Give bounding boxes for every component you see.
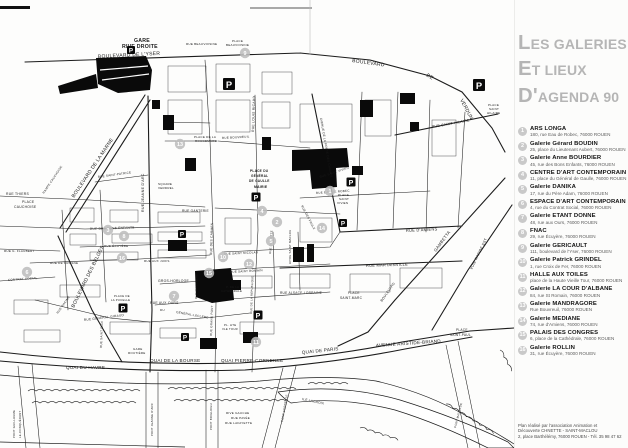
street-label: QUAI DE LA BOURSE <box>150 358 200 363</box>
legend-entry-text: Galerie LA COUR D'ALBANE84, rue St Romai… <box>530 286 612 297</box>
gallery-address: 48, rue aux Ours, 76000 ROUEN <box>530 220 597 225</box>
legend-entry-text: Galerie Patrick GRINDEL1, rue Croix de F… <box>530 257 602 268</box>
street-label: RUE MARTAINVILLE <box>366 262 408 268</box>
street-label: VOIE RAPIDE EST <box>469 237 488 270</box>
legend-entry: 14Galerie MEDIANE74, rue d'Amiens, 76000… <box>518 316 628 327</box>
legend-title: LES GALERIES ET LIEUX D'AGENDA 90 <box>518 30 626 109</box>
gallery-name: ESPACE D'ART CONTEMPORAIN <box>530 199 626 205</box>
street-label: PLACE <box>456 328 468 332</box>
street-label: RUE GRAND PONT <box>209 305 214 336</box>
gallery-name: PALAIS DES CONGRES <box>530 330 614 336</box>
street-label: RUE AUX OURS <box>150 301 179 305</box>
gallery-address: 31, rue Écuyère, 76000 ROUEN <box>530 351 596 356</box>
parking-icon-letter: P <box>256 313 261 320</box>
legend-number-badge: 11 <box>518 273 527 282</box>
gallery-address: 17, rue du Père Adam, 76000 ROUEN <box>530 191 608 196</box>
street-label: RUE SAINT NICOLAS <box>224 250 258 256</box>
street-label: RUE ÉCUYÈRE <box>104 243 128 248</box>
river-wave-line <box>28 389 140 391</box>
legend-entry: 3Galerie Anne BOURDIER45, rue des Bons E… <box>518 155 628 166</box>
legend-entry-text: Galerie Anne BOURDIER45, rue des Bons En… <box>530 155 615 166</box>
gallery-name: Galerie LA COUR D'ALBANE <box>530 286 612 292</box>
street-label: SAINT-PAUL <box>450 333 471 337</box>
street-label: VERDUN <box>458 98 474 121</box>
street-label: RUE DE LA RÉPUBLIQUE <box>248 275 254 314</box>
street-label: LE-CONQUÉRANT <box>17 410 22 438</box>
parking-icon-letter: P <box>349 180 354 187</box>
gallery-marker-number: 15 <box>206 271 212 277</box>
street-label: RUE SAINT ROMAIN <box>230 268 263 274</box>
legend-number-badge: 9 <box>518 244 527 253</box>
street-labels: GARERIVE DROITEBOULEVARD DE L'YSERBOULEV… <box>4 38 500 438</box>
street-label: CAUCHOISE <box>14 205 37 209</box>
legend-number-badge: 5 <box>518 185 527 194</box>
street-label: CONTRAT SOCIAL <box>8 276 38 282</box>
river-wave-line <box>32 401 136 403</box>
title-line-1: LES GALERIES <box>518 30 626 56</box>
legend-number-badge: 7 <box>518 214 527 223</box>
gallery-marker-number: 5 <box>270 239 273 245</box>
credit-line: 2, place Barthélémy, 76000 ROUEN - Tél. … <box>518 434 622 440</box>
street-label: DU <box>160 308 165 312</box>
river-wave-line <box>168 387 296 389</box>
street-label: RUE D'AMIENS <box>406 226 438 233</box>
legend-entry: 6ESPACE D'ART CONTEMPORAIN4, rue du Cont… <box>518 199 628 210</box>
street-label: PONT CORNEILLE <box>280 394 289 422</box>
gallery-address: place de la Haute Vieille Tour, 76000 RO… <box>530 278 622 283</box>
gallery-address: 111, boulevard de l'Yser, 76000 ROUEN <box>530 249 612 254</box>
gallery-address: 1, rue Croix de Fer, 76000 ROUEN <box>530 264 602 269</box>
gallery-marker-number: 12 <box>246 262 252 268</box>
street-label: RUE G. FLAUBERT <box>4 249 35 253</box>
gallery-address: 45, rue des Bons Enfants, 76000 ROUEN <box>530 162 615 167</box>
gallery-address: 25, place du Lieutenant Aubert, 76000 RO… <box>530 147 626 152</box>
street-label: RUE DES FAULX <box>300 205 316 231</box>
street-label: BEAUVOISINE <box>226 43 249 47</box>
street-label: RUE BOUVREUIL <box>222 135 250 140</box>
gallery-name: Galerie Gérard BOUDIN <box>530 141 626 147</box>
street-label: PLACE <box>22 200 35 204</box>
gallery-address: Rue Bouvreuil, 76000 ROUEN <box>530 307 597 312</box>
street-label: GÉNÉRAL <box>251 173 268 178</box>
parking-icon-letter: P <box>121 306 126 313</box>
gallery-address: 29, rue Écuyère, 76000 ROUEN <box>530 234 596 239</box>
street-label: BOULEVARD DES BELGES <box>70 244 106 309</box>
legend-number-badge: 10 <box>518 258 527 267</box>
legend-number-badge: 1 <box>518 127 527 136</box>
legend-entry: 2Galerie Gérard BOUDIN25, place du Lieut… <box>518 141 628 152</box>
gallery-marker-number: 2 <box>276 220 279 226</box>
city-blocks <box>14 64 456 342</box>
legend-entry-text: CENTRE D'ART CONTEMPORAIN11, place du Gé… <box>530 170 626 181</box>
gallery-marker-number: 10 <box>220 255 226 261</box>
legend-entry: 13Galerie MANDRAGORERue Bouvreuil, 76000… <box>518 301 628 312</box>
street-label: RUE RACINE <box>56 295 71 315</box>
legend-entry-text: Galerie ROLLIN31, rue Écuyère, 76000 ROU… <box>530 345 596 356</box>
legend-entry-text: Galerie MANDRAGORERue Bouvreuil, 76000 R… <box>530 301 597 312</box>
legend-entry-text: Galerie MEDIANE74, rue d'Amiens, 76000 R… <box>530 316 598 327</box>
legend-entry: 16Galerie ROLLIN31, rue Écuyère, 76000 R… <box>518 345 628 356</box>
street-label: RUE BEAUVOISINE <box>186 42 217 46</box>
parking-icon-letter: P <box>183 335 187 342</box>
scanned-map-page: GARERIVE DROITEBOULEVARD DE L'YSERBOULEV… <box>0 0 628 448</box>
gallery-marker-number: 6 <box>26 270 29 276</box>
gallery-marker-number: 16 <box>119 256 125 262</box>
title-line-2: ET LIEUX <box>518 56 626 82</box>
gallery-address: 74, rue d'Amiens, 76000 ROUEN <box>530 322 598 327</box>
street-label: RUE SAINT ELOI <box>99 321 104 348</box>
parking-icon-letter: P <box>341 221 345 228</box>
street-label: VIVIEN <box>337 201 348 205</box>
gallery-name: Galerie DANIKA <box>530 184 608 190</box>
legend-entry-text: PALAIS DES CONGRES6, place de la Cathédr… <box>530 330 614 341</box>
street-label: RUE PAVÉE <box>231 415 250 420</box>
river-wave-line <box>308 382 348 384</box>
legend-number-badge: 15 <box>518 331 527 340</box>
legend-entry: 10Galerie Patrick GRINDEL1, rue Croix de… <box>518 257 628 268</box>
gallery-name: Galerie ROLLIN <box>530 345 596 351</box>
street-label: RUE GANTERIE <box>182 209 209 213</box>
parking-icon-letter: P <box>129 48 133 55</box>
legend-entry-text: Galerie Gérard BOUDIN25, place du Lieute… <box>530 141 626 152</box>
train-station-wing <box>58 74 98 94</box>
legend-entry-text: FNAC29, rue Écuyère, 76000 ROUEN <box>530 228 596 239</box>
legend-entry: 9Galerie GERICAULT111, boulevard de l'Ys… <box>518 243 628 254</box>
street-label: AITRE SAINT MACLOU <box>288 230 292 264</box>
street-label: RUE DES CARMES <box>209 223 214 255</box>
street-label: MAIRIE <box>254 185 268 189</box>
rouen-city-map: GARERIVE DROITEBOULEVARD DE L'YSERBOULEV… <box>0 0 514 448</box>
street-label: RUE DE CROSNE <box>50 261 78 265</box>
street-label: AVENUE ARISTIDE-BRIAND <box>376 338 442 348</box>
street-label: SAINT-MARC <box>340 296 363 300</box>
gallery-name: Galerie Anne BOURDIER <box>530 155 615 161</box>
gallery-marker-number: 8 <box>123 234 126 240</box>
legend-number-badge: 8 <box>518 229 527 238</box>
gallery-name: ARS LONGA <box>530 126 610 132</box>
legend-entry-text: Galerie GERICAULT111, boulevard de l'Yse… <box>530 243 612 254</box>
legend-entry-list: 1ARS LONGA180, rue Eau de Robec, 76000 R… <box>518 126 628 359</box>
gallery-address: 4, rue du Contrat Social, 76000 ROUEN <box>530 205 626 210</box>
gallery-name: Galerie MANDRAGORE <box>530 301 597 307</box>
legend-entry: 11HALLE AUX TOILESplace de la Haute Viei… <box>518 272 628 283</box>
street-label: GROS-HORLOGE <box>158 279 190 283</box>
legend-entry: 8FNAC29, rue Écuyère, 76000 ROUEN <box>518 228 628 239</box>
street-label: PONT BOIELDIEU <box>209 403 213 430</box>
gallery-marker-number: 11 <box>253 340 259 346</box>
street-label: ROUGEMARE <box>195 139 217 143</box>
street-label: RUE AUX JUIFS <box>144 259 170 263</box>
legend-entry: 5Galerie DANIKA17, rue du Père Adam, 760… <box>518 184 628 195</box>
legend-panel: LES GALERIES ET LIEUX D'AGENDA 90 1ARS L… <box>514 0 628 448</box>
legend-entry-text: ARS LONGA180, rue Eau de Robec, 76000 RO… <box>530 126 610 137</box>
street-label: RUE THIERS <box>6 192 29 196</box>
legend-number-badge: 16 <box>518 346 527 355</box>
gallery-address: 180, rue Eau de Robec, 76000 ROUEN <box>530 132 610 137</box>
street-label: PLACE DU <box>250 169 269 173</box>
gallery-address: 84, rue St Romain, 76000 ROUEN <box>530 293 612 298</box>
street-label: RUE ALSACE-LORRAINE <box>280 291 322 295</box>
legend-number-badge: 12 <box>518 287 527 296</box>
river-wave-line <box>360 426 399 440</box>
gallery-marker-number: 3 <box>107 228 110 234</box>
legend-number-badge: 14 <box>518 317 527 326</box>
street-label: GÉNÉRAL-LECLERC <box>176 309 210 320</box>
legend-number-badge: 6 <box>518 200 527 209</box>
street-label: PLACE <box>348 291 360 295</box>
street-label: CATHÉDRALE <box>221 288 242 293</box>
gallery-marker-number: 13 <box>177 142 183 148</box>
street-label: ROUTIÈRE <box>128 350 146 355</box>
river-banks <box>0 375 514 448</box>
legend-entry: 4CENTRE D'ART CONTEMPORAIN11, place du G… <box>518 170 628 181</box>
parking-icon-letter: P <box>226 80 232 90</box>
street-label: VLE TOUR <box>222 327 238 331</box>
legend-number-badge: 3 <box>518 156 527 165</box>
gallery-name: HALLE AUX TOILES <box>530 272 622 278</box>
gallery-name: Galerie MEDIANE <box>530 316 598 322</box>
legend-entry-text: HALLE AUX TOILESplace de la Haute Vieill… <box>530 272 622 283</box>
gallery-marker-number: 1 <box>329 189 332 195</box>
title-line-3: D'AGENDA 90 <box>518 83 626 109</box>
street-label: PONT JEANNE D'ARC <box>150 403 154 436</box>
street-label: DE <box>425 73 435 82</box>
gallery-name: Galerie GERICAULT <box>530 243 612 249</box>
street-label: HILAIRE <box>487 111 500 115</box>
street-label: PONT GUILLAUME <box>12 410 16 438</box>
legend-entry-text: Galerie DANIKA17, rue du Père Adam, 7600… <box>530 184 608 195</box>
legend-entry: 7Galerie ETANT DONNE48, rue aux Ours, 76… <box>518 213 628 224</box>
gallery-address: 11, place du Général de Gaulle, 76000 RO… <box>530 176 626 181</box>
legend-entry-text: ESPACE D'ART CONTEMPORAIN4, rue du Contr… <box>530 199 626 210</box>
river-wave-line <box>174 399 286 401</box>
parking-icon-letter: P <box>180 232 184 239</box>
legend-number-badge: 4 <box>518 171 527 180</box>
street-label: RAMPE CAUCHOISE <box>42 165 64 195</box>
legend-entry: 1ARS LONGA180, rue Eau de Robec, 76000 R… <box>518 126 628 137</box>
street-label: RUE GÉNÉRAL GIRAUD <box>84 312 125 322</box>
street-label: LA PUCELLE <box>111 298 130 302</box>
parking-icon-letter: P <box>254 195 259 202</box>
gallery-name: Galerie ETANT DONNE <box>530 213 597 219</box>
street-label: QUAI DU HAVRE <box>66 365 105 370</box>
legend-entry-text: Galerie ETANT DONNE48, rue aux Ours, 760… <box>530 213 597 224</box>
gallery-name: Galerie Patrick GRINDEL <box>530 257 602 263</box>
gallery-marker-number: 7 <box>173 294 176 300</box>
legend-number-badge: 2 <box>518 142 527 151</box>
gallery-marker-number: 9 <box>244 51 247 57</box>
gallery-address: 6, place de la Cathédrale, 76000 ROUEN <box>530 336 614 341</box>
street-label: RIVE GAUCHE <box>226 411 249 415</box>
legend-entry: 15PALAIS DES CONGRES6, place de la Cathé… <box>518 330 628 341</box>
street-label: QUAI PIERRE-CORNEILLE <box>221 358 283 363</box>
legend-entry: 12Galerie LA COUR D'ALBANE84, rue St Rom… <box>518 286 628 297</box>
street-label: RUE LAFAYETTE <box>225 421 252 425</box>
gallery-name: CENTRE D'ART CONTEMPORAIN <box>530 170 626 176</box>
street-label: BOULEVARD <box>352 58 385 69</box>
street-label: DE GAULLE <box>249 179 270 183</box>
street-label: RUE JEANNE D'ARC <box>141 173 145 212</box>
parking-icon-letter: P <box>476 81 482 91</box>
credit-note: Plan réalisé par l'association Animation… <box>518 423 622 440</box>
gallery-marker-number: 14 <box>319 226 325 232</box>
legend-number-badge: 13 <box>518 302 527 311</box>
river-wave-line <box>500 349 513 371</box>
gallery-marker-number: 4 <box>261 209 264 215</box>
street-label: VERDREL <box>158 186 174 190</box>
